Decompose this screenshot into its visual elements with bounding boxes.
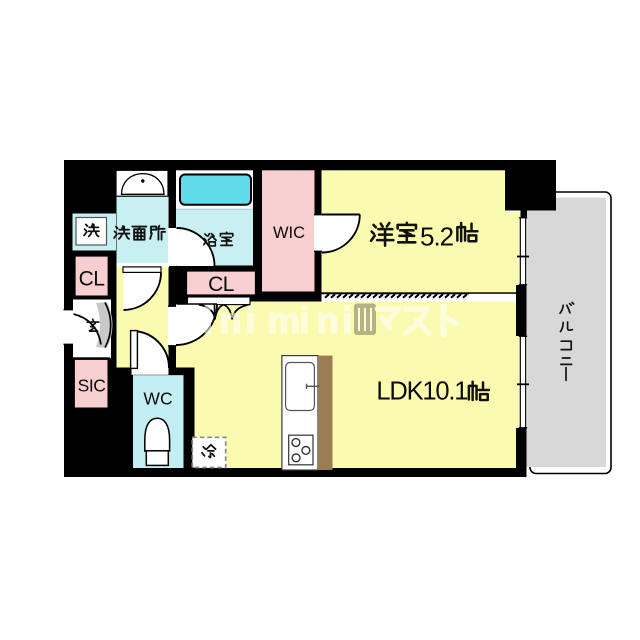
svg-text:m: m xyxy=(267,300,300,341)
svg-text:i: i xyxy=(203,300,213,341)
svg-text:i: i xyxy=(245,300,255,341)
svg-text:n: n xyxy=(219,300,242,341)
svg-text:n: n xyxy=(316,300,339,341)
svg-text:SIC: SIC xyxy=(78,376,106,396)
svg-text:5.2: 5.2 xyxy=(420,221,454,251)
svg-text:CL: CL xyxy=(208,273,234,296)
svg-text:WIC: WIC xyxy=(273,224,305,242)
svg-text:m: m xyxy=(171,300,204,341)
svg-text:WC: WC xyxy=(143,389,172,409)
svg-text:i: i xyxy=(342,300,352,341)
svg-text:CL: CL xyxy=(79,268,105,291)
svg-text:LDK10.1: LDK10.1 xyxy=(376,378,467,406)
svg-text:i: i xyxy=(299,300,309,341)
